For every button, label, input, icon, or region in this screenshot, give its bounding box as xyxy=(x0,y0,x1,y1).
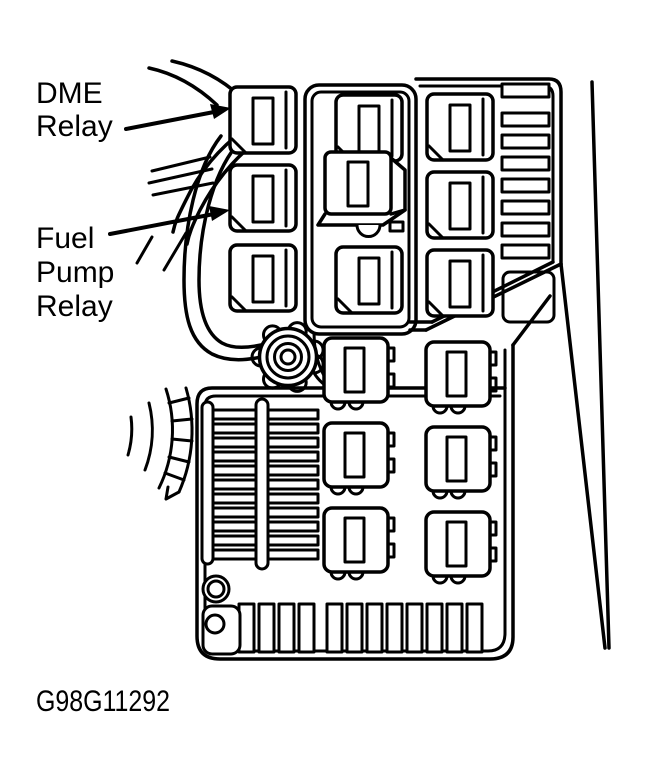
hose-arc xyxy=(128,417,132,455)
fuse-ladder xyxy=(202,399,318,569)
relay xyxy=(336,247,402,313)
relay xyxy=(426,512,496,583)
hose-end-flick xyxy=(166,487,179,499)
labels: DME Relay Fuel Pump Relay G98G11292 xyxy=(36,77,170,718)
relay-3d xyxy=(318,152,405,237)
relay xyxy=(426,427,496,498)
fuel-pump-label-line2: Pump xyxy=(36,256,114,289)
relay xyxy=(324,508,394,579)
fuse xyxy=(259,604,274,652)
dme-arrowhead xyxy=(210,104,231,119)
mounting-hole xyxy=(206,615,224,633)
fuse xyxy=(387,604,402,652)
wire-slash-marks xyxy=(137,233,186,270)
fuel-pump-relay xyxy=(230,165,296,231)
mounting-hole xyxy=(208,581,224,597)
mounting-holes xyxy=(203,576,240,654)
fuse xyxy=(467,604,482,652)
dme-relay xyxy=(230,87,296,153)
fuse xyxy=(279,604,294,652)
relay-column-left xyxy=(230,87,296,311)
dme-arrow xyxy=(126,104,231,129)
fuse xyxy=(502,113,549,126)
figure-caption: G98G11292 xyxy=(36,685,170,718)
body-panel-lines xyxy=(561,82,609,648)
fuse xyxy=(502,157,549,170)
hose-arc xyxy=(145,403,152,470)
relay-column-top-right xyxy=(427,94,493,316)
fuse xyxy=(327,604,342,652)
fuse xyxy=(502,245,549,258)
fuse xyxy=(447,604,462,652)
dme-label-line2: Relay xyxy=(36,110,113,143)
relay xyxy=(427,250,493,316)
relay xyxy=(324,423,394,494)
ladder-rail-left xyxy=(202,402,213,564)
relay xyxy=(426,342,496,413)
fuse xyxy=(502,223,549,236)
fuse-relay-diagram: DME Relay Fuel Pump Relay G98G11292 xyxy=(0,0,645,782)
fuse xyxy=(407,604,422,652)
fuse-column-top-right xyxy=(502,84,554,322)
diagram-canvas: DME Relay Fuel Pump Relay G98G11292 xyxy=(0,0,645,782)
relay-grid-bottom xyxy=(324,338,496,583)
fuse xyxy=(502,179,549,192)
fuse xyxy=(502,84,549,97)
fuel-pump-arrow xyxy=(110,206,230,234)
wire-hatch-lines xyxy=(149,157,213,195)
fuse xyxy=(367,604,382,652)
fuse-row-bottom xyxy=(239,604,482,652)
dme-label-line1: DME xyxy=(36,77,103,110)
fuse xyxy=(299,604,314,652)
fuel-pump-label-line3: Relay xyxy=(36,290,113,323)
relay xyxy=(324,338,394,409)
fuse xyxy=(347,604,362,652)
relay xyxy=(427,94,493,160)
fuel-pump-arrowhead xyxy=(209,206,230,221)
ladder-rail-middle xyxy=(256,399,268,569)
corrugated-hose-arcs xyxy=(128,388,192,499)
fuel-pump-label-line1: Fuel xyxy=(36,222,94,255)
relay xyxy=(230,245,296,311)
fuse xyxy=(427,604,442,652)
relay xyxy=(427,172,493,238)
bolt-center xyxy=(281,350,295,364)
fuse xyxy=(502,201,549,214)
fuse xyxy=(502,135,549,148)
